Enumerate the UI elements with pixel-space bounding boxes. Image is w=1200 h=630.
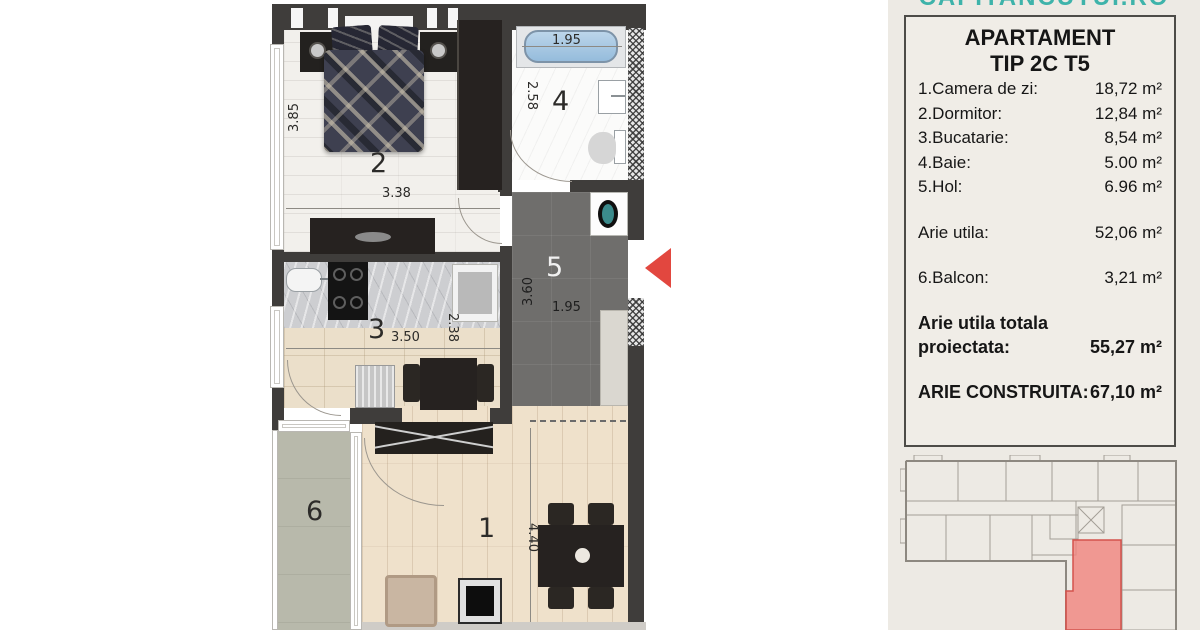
dining-chair-2 [588,503,614,525]
arie-construita-label: ARIE CONSTRUITA: [918,380,1089,405]
sink-faucet [611,95,625,97]
dim-hol-h: 3.60 [521,277,536,306]
arie-construita-row: ARIE CONSTRUITA: 67,10 m² [918,380,1162,405]
arie-construita-value: 67,10 m² [1090,380,1162,405]
kitchen-chair-left [403,364,420,402]
wall-left-mid [272,250,284,306]
balcon-label: 6.Balcon: [918,266,989,291]
arie-utila-value: 52,06 m² [1095,221,1162,246]
top-wall-window-c [427,8,437,28]
ceiling-beam-dashed [530,420,626,422]
apartment-info-box: APARTAMENT TIP 2C T5 1.Camera de zi: 18,… [904,15,1176,447]
wall-hall-left-b [500,246,512,422]
arie-totala-value: 55,27 m² [1090,335,1162,360]
shoe-cabinet [600,310,628,406]
website-link[interactable]: CAPITANCUTUI.RO [888,0,1200,12]
room-number-baie: 4 [552,86,569,117]
info-panel: CAPITANCUTUI.RO APARTAMENT TIP 2C T5 1.C… [888,0,1200,630]
room-row-hol: 5.Hol: 6.96 m² [918,175,1162,200]
room-label: 5.Hol: [918,175,962,200]
coffee-table-top [466,586,494,616]
kitchen-chair-right [477,364,494,402]
table-decor [575,548,590,563]
room-label: 1.Camera de zi: [918,77,1038,102]
kitchen-sink [286,268,322,292]
balcon-row: 6.Balcon: 3,21 m² [918,266,1162,291]
room-area: 6.96 m² [1104,175,1162,200]
room-row-baie: 4.Baie: 5.00 m² [918,151,1162,176]
dim-dormitor-h: 3.85 [287,103,302,132]
apartment-title-line1: APARTAMENT [918,25,1162,51]
bed-duvet [324,50,424,152]
arie-totala-line2: proiectata: 55,27 m² [918,335,1162,360]
dim-bucatarie-h: 2.38 [445,313,460,342]
room-label: 3.Bucatarie: [918,126,1009,151]
top-wall-window-b [328,8,338,28]
dim-baie-h: 2.58 [524,81,539,110]
dining-chair-3 [548,587,574,609]
room-number-balcon: 6 [306,496,323,527]
balcon-value: 3,21 m² [1104,266,1162,291]
balcony-rail [272,430,278,630]
arie-totala-label1: Arie utila totala [918,311,1048,336]
room-number-bucatarie: 3 [368,314,385,345]
wall-right-mid [628,180,644,240]
balcony-floor [272,430,350,630]
dim-dormitor-w: 3.38 [382,186,411,201]
building-key-plan [900,455,1184,630]
wall-bath-bottom [570,180,628,192]
fridge [355,365,395,408]
room-area: 18,72 m² [1095,77,1162,102]
kitchen-table [420,358,477,410]
burner-1 [333,268,346,281]
apartment-title-line2: TIP 2C T5 [918,51,1162,77]
wall-kitchen-living-right [490,408,512,424]
dining-chair-1 [548,503,574,525]
kitchen-appliance-door [458,272,492,314]
room-row-camera-de-zi: 1.Camera de zi: 18,72 m² [918,77,1162,102]
room-row-bucatarie: 3.Bucatarie: 8,54 m² [918,126,1162,151]
room-area: 8,54 m² [1104,126,1162,151]
room-number-hol: 5 [546,252,563,283]
kitchen-window [270,306,284,388]
dimline-bedroom [286,208,500,209]
room-number-living: 1 [478,513,495,544]
bathroom-sink [598,80,626,114]
dim-living-h: 4.40 [525,523,540,552]
floor-plan: 1.95 [270,0,670,630]
burner-2 [350,268,363,281]
room-label: 2.Dormitor: [918,102,1002,127]
arie-totala-line1: Arie utila totala [918,311,1162,336]
lamp-right [432,44,445,57]
wall-right-hatch-bottom [628,298,644,346]
wardrobe [457,20,502,190]
wall-right-corner [628,4,644,28]
toilet-bowl [588,132,616,164]
burner-3 [333,296,346,309]
dimline-kitchen [286,348,500,349]
arie-utila-label: Arie utila: [918,221,989,246]
room-area: 12,84 m² [1095,102,1162,127]
highlighted-unit [1066,540,1121,630]
balcony-living-window [350,432,362,630]
lamp-left [311,44,324,57]
wall-right-hatch-top [628,28,644,180]
wall-left-top [272,30,284,44]
entrance-opening [628,240,644,298]
wall-hall-left-a [500,190,512,196]
washing-machine-drum [598,200,618,228]
dining-chair-4 [588,587,614,609]
room-area: 5.00 m² [1104,151,1162,176]
armchair [385,575,437,627]
burner-4 [350,296,363,309]
balcony-top-window [278,420,350,432]
room-number-dormitor: 2 [370,148,387,179]
bedroom-window [270,44,284,250]
apartment-listing-image: { "site": { "url_text": "CAPITANCUTUI.RO… [0,0,1200,630]
dimline-bathtub [522,46,622,47]
wall-right-low [628,346,644,630]
room-label: 4.Baie: [918,151,971,176]
arie-utila-row: Arie utila: 52,06 m² [918,221,1162,246]
room-row-dormitor: 2.Dormitor: 12,84 m² [918,102,1162,127]
dresser-handle [355,232,391,242]
dim-bucatarie-w: 3.50 [391,330,420,345]
entrance-arrow [645,248,671,288]
arie-totala-label2: proiectata: [918,335,1010,360]
dim-hol-w: 1.95 [552,300,581,315]
top-wall-window-a [291,8,303,28]
